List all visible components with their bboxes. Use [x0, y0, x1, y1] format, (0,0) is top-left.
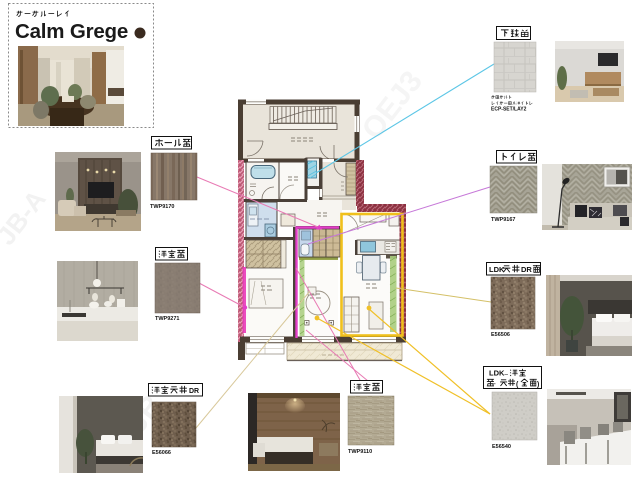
svg-text:DR: DR: [189, 388, 199, 395]
svg-text:Calm Grege: Calm Grege: [15, 20, 128, 43]
svg-text:TWP9167: TWP9167: [491, 217, 515, 223]
svg-text:LDK: LDK: [489, 265, 505, 274]
svg-text:TWP9170: TWP9170: [150, 204, 174, 210]
svg-text:E56506: E56506: [491, 332, 510, 338]
svg-text:E56540: E56540: [492, 444, 511, 450]
svg-text:): ): [537, 382, 539, 389]
svg-text:E56066: E56066: [152, 450, 171, 456]
svg-text:DR: DR: [521, 265, 532, 274]
svg-text:ECP-SET/LAY2: ECP-SET/LAY2: [491, 107, 527, 113]
svg-text:TWP9110: TWP9110: [348, 449, 372, 455]
svg-text:LDK: LDK: [489, 369, 505, 378]
svg-text:TWP9271: TWP9271: [155, 316, 179, 322]
